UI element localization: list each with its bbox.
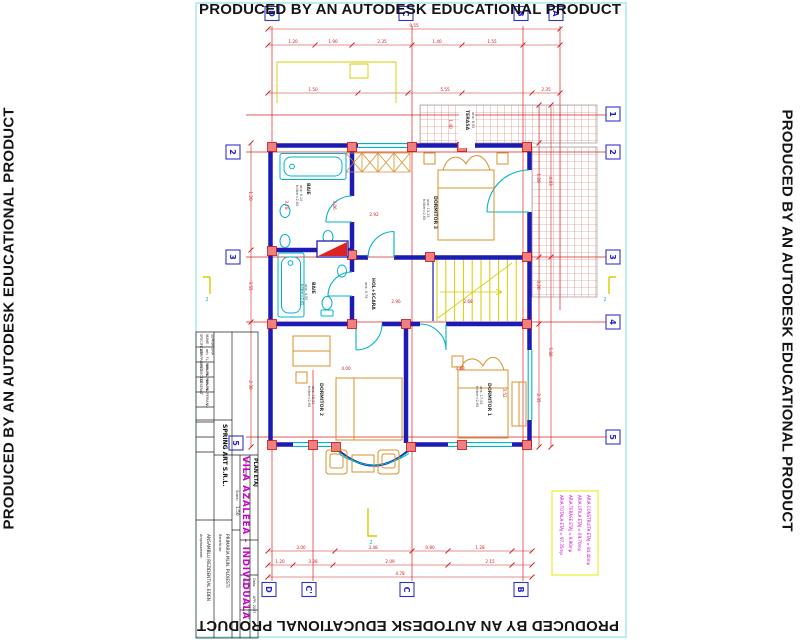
area-total-line: ARIA TOTALA ETAJ = 97.35mp xyxy=(559,495,564,555)
title-block: SPECIFICATIE NUME SEMNATURA SEF PROIECT … xyxy=(196,332,258,638)
dim-text: 2.35 xyxy=(541,87,551,92)
axis-number: 5 xyxy=(608,434,617,440)
beneficiary-value: PRIMARIA MUN. PLOIESTI xyxy=(224,534,230,588)
room-label-terasa: TERASA xyxy=(464,110,470,131)
dim-text: 2.68 xyxy=(463,299,473,304)
dim-text: 4.00 xyxy=(341,366,351,371)
axis-number: 2 xyxy=(228,149,237,155)
floor-plan-canvas: 2 2 2 D C B A D C' C B xyxy=(0,0,800,640)
axis-number: 4 xyxy=(608,319,617,325)
sheet-title-value: PLAN ETAJ xyxy=(252,458,258,487)
dim-text: 3.55 xyxy=(248,281,253,291)
dim-text: 0.80 xyxy=(425,545,435,550)
sink-icon-2 xyxy=(338,265,347,277)
room-label-dormitor2: DORMITOR 2 xyxy=(318,383,324,416)
axis-letter: C' xyxy=(304,585,313,593)
axis-letter: C xyxy=(402,587,411,593)
dim-text: 3.00 xyxy=(296,545,306,550)
room-label-hol: HOL+SCARA xyxy=(370,278,376,310)
dim-text: 5.88 xyxy=(548,347,553,357)
bathtub xyxy=(280,154,346,180)
closet-hatch xyxy=(346,153,410,172)
dim-text: 4.03 xyxy=(548,176,553,186)
dim-text: 1.40 xyxy=(448,119,453,129)
axis-number: 3 xyxy=(228,254,237,260)
scale-value: 1:50 xyxy=(234,506,240,516)
sign-header: SEMNATURA xyxy=(211,334,215,356)
room-height-dormitor1: h:liber=2.65 xyxy=(475,386,479,407)
dim-text: 3.48 xyxy=(368,545,378,550)
dim-text: 2.96 xyxy=(391,299,401,304)
dim-text: 1.20 xyxy=(248,191,253,201)
dim-text: 2.09 xyxy=(385,559,395,564)
watermark-bottom: PRODUCED BY AN AUTODESK EDUCATIONAL PROD… xyxy=(199,617,619,634)
area-utila-line: ARIA UTILA ETAJ = 69.70mp xyxy=(577,495,582,551)
terrace-hatch xyxy=(420,105,597,297)
date-value: APR. 2007 xyxy=(252,596,256,613)
dim-text: 3.78 xyxy=(284,200,289,210)
company-name: SPRING ART S.R.L. xyxy=(221,424,228,487)
dim-text: 3.68 xyxy=(455,366,465,371)
dim-text: 1.20 xyxy=(275,559,285,564)
room-label-dormitor3: DORMITOR 3 xyxy=(432,196,438,229)
watermark-right: PRODUCED BY AN AUTODESK EDUCATIONAL PROD… xyxy=(779,110,796,530)
room-label-dormitor1: DORMITOR 1 xyxy=(486,383,492,416)
toilet-icon-2 xyxy=(321,297,333,317)
section-label: 2 xyxy=(603,297,606,303)
dim-text: 2.92 xyxy=(369,212,379,217)
watermark-left: PRODUCED BY AN AUTODESK EDUCATIONAL PROD… xyxy=(1,110,18,530)
dim-text: 1.28 xyxy=(475,545,485,550)
dim-text: 2.35 xyxy=(536,393,541,403)
name-desenat: arh. FL. PERIANU xyxy=(205,379,209,408)
axis-letter: B xyxy=(516,586,525,592)
role-desenat: DESENAT xyxy=(199,379,203,396)
room-height-baie2: h:liber=2.65 xyxy=(300,284,304,305)
dim-text: 9.55 xyxy=(409,23,419,28)
furniture xyxy=(293,153,526,474)
room-height-baie1: h:liber=2.65 xyxy=(295,185,299,206)
beneficiary-label: Beneficiar: xyxy=(218,534,222,552)
shower-box xyxy=(317,241,348,257)
axis-number: 3 xyxy=(608,254,617,260)
window-glazing xyxy=(293,144,532,447)
scale-label: Scara: xyxy=(235,490,239,501)
section-label: 2 xyxy=(205,297,208,303)
watermark-top: PRODUCED BY AN AUTODESK EDUCATIONAL PROD… xyxy=(199,1,619,18)
dim-text: 1.28 xyxy=(536,173,541,183)
area-construita-line: ARIA CONSTRUITA ETAJ = 84.40mp xyxy=(586,495,591,565)
axis-number: 1 xyxy=(608,111,617,117)
roof-outline xyxy=(277,62,396,103)
dim-text: 2.15 xyxy=(485,559,495,564)
dim-text: 3.28 xyxy=(308,559,318,564)
room-height-dormitor3: h:liber=2.65 xyxy=(422,199,426,220)
dim-text: 5.55 xyxy=(440,87,450,92)
room-label-baie1: BAIE xyxy=(305,183,311,195)
name-header: NUME xyxy=(205,334,209,344)
room-area-terasa: aria: 8.90 xyxy=(471,112,475,128)
sink-icon xyxy=(280,205,290,248)
site-label: Amplasament: xyxy=(199,534,203,559)
dim-text: 1.20 xyxy=(288,39,298,44)
room-label-baie2: BAIE xyxy=(310,282,316,294)
area-terase-line: ARIA TERASE ETAJ = 8.90mp xyxy=(568,495,573,553)
dim-text: 1.55 xyxy=(487,39,497,44)
dim-text: 2.35 xyxy=(377,39,387,44)
dim-text: 1.90 xyxy=(328,39,338,44)
dim-text: 2.30 xyxy=(248,380,253,390)
dim-text: 1.50 xyxy=(308,87,318,92)
dim-text: 3.26 xyxy=(536,280,541,290)
room-height-dormitor2: h:liber=2.65 xyxy=(307,386,311,407)
dim-text: 3.52 xyxy=(502,388,507,398)
dim-text: 1.40 xyxy=(432,39,442,44)
stairs xyxy=(437,259,516,321)
dim-text: 4.78 xyxy=(395,571,405,576)
axis-letter: D xyxy=(264,586,273,593)
project-title: VILA AZALEEA - INDIVIDUALA xyxy=(240,456,250,619)
room-area-hol: aria: 9.79 xyxy=(364,282,368,298)
date-label: Data: xyxy=(252,578,256,587)
site-value: ANSAMBLU REZIDENTIAL EDEN xyxy=(205,534,211,601)
axis-number: 2 xyxy=(608,149,617,155)
dim-text: 3.06 xyxy=(332,200,337,210)
drawing-sheet: PRODUCED BY AN AUTODESK EDUCATIONAL PROD… xyxy=(0,0,800,640)
areas-legend: ARIA TOTALA ETAJ = 97.35mp ARIA TERASE E… xyxy=(552,491,598,575)
